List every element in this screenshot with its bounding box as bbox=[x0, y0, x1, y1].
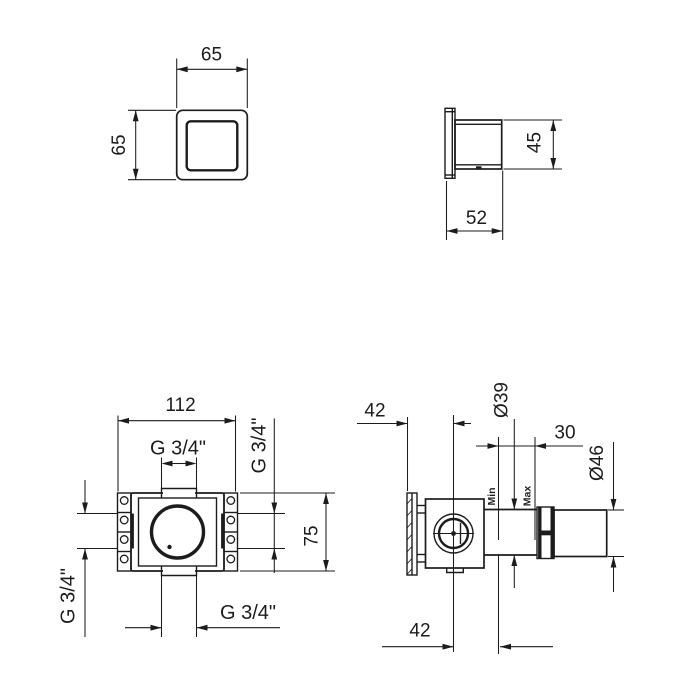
view-valve-front: 112 G 3/4" G 3/4" 75 bbox=[58, 395, 336, 637]
arrow-up-icon bbox=[511, 555, 517, 566]
arrow-left-icon bbox=[447, 228, 458, 234]
dim-label-center-to-min-wall: 42 bbox=[409, 621, 430, 642]
label-max: Max bbox=[522, 486, 534, 507]
valve-right-mounting-strip bbox=[224, 493, 238, 571]
label-top-port-thread: G 3/4" bbox=[150, 438, 206, 460]
arrow-up-icon bbox=[611, 557, 617, 568]
valve-sleeve bbox=[554, 510, 607, 557]
arrow-left-icon bbox=[197, 625, 208, 631]
view-trim-front: 65 65 bbox=[109, 45, 247, 180]
trim-side-body bbox=[455, 120, 502, 169]
arrow-up-icon bbox=[82, 549, 88, 560]
arrow-right-icon bbox=[488, 443, 499, 449]
label-min: Min bbox=[486, 487, 498, 505]
technical-drawing: 65 65 45 bbox=[0, 0, 700, 700]
dim-label-valve-width: 112 bbox=[165, 395, 195, 416]
trim-plate-inner-square bbox=[187, 121, 238, 170]
label-bottom-port-thread: G 3/4" bbox=[220, 602, 276, 624]
dimension-left-port: G 3/4" bbox=[58, 480, 118, 637]
dimension-trim-total-depth: 52 bbox=[447, 171, 503, 241]
dimension-right-port: G 3/4" bbox=[238, 417, 286, 573]
dim-label-body-depth: 45 bbox=[525, 132, 546, 153]
arrow-down-icon bbox=[82, 503, 88, 514]
arrow-left-icon bbox=[454, 421, 465, 427]
valve-stem-center-dot bbox=[451, 531, 456, 536]
view-trim-side: 45 52 bbox=[445, 108, 562, 240]
dim-label-trim-width: 65 bbox=[201, 45, 222, 66]
valve-cartridge-circle bbox=[152, 506, 204, 558]
arrow-down-icon bbox=[323, 560, 329, 571]
arrow-left-icon bbox=[162, 461, 173, 467]
arrow-right-icon bbox=[492, 228, 503, 234]
view-valve-side: 42 Ø39 30 Min Max bbox=[357, 382, 624, 654]
arrow-right-icon bbox=[443, 644, 454, 650]
valve-index-dot bbox=[167, 545, 171, 549]
arrow-down-icon bbox=[550, 158, 556, 169]
dimension-trim-height: 65 bbox=[109, 110, 176, 179]
dimension-sleeve-diameter: Ø46 bbox=[587, 442, 624, 592]
arrow-down-icon bbox=[133, 169, 139, 180]
arrow-down-icon bbox=[611, 499, 617, 510]
dimension-top-port: G 3/4" bbox=[150, 438, 206, 489]
arrow-right-icon bbox=[397, 421, 408, 427]
valve-side-wall-plate bbox=[407, 493, 417, 575]
dimension-bottom-port: G 3/4" bbox=[125, 576, 280, 637]
valve-left-mounting-strip bbox=[118, 493, 132, 571]
technical-drawing-page: 65 65 45 bbox=[0, 0, 700, 700]
arrow-down-icon bbox=[271, 503, 277, 514]
dim-label-total-depth: 52 bbox=[466, 208, 487, 229]
dimension-adjustment-range: 30 Min Max bbox=[476, 423, 583, 655]
arrow-right-icon bbox=[151, 625, 162, 631]
arrow-up-icon bbox=[550, 120, 556, 131]
dim-label-trim-height: 65 bbox=[109, 134, 130, 155]
arrow-right-icon bbox=[225, 418, 236, 424]
arrow-up-icon bbox=[323, 493, 329, 504]
trim-side-plate bbox=[445, 108, 455, 178]
dim-label-valve-height: 75 bbox=[302, 525, 323, 546]
dimension-trim-side-depth: 45 bbox=[504, 120, 563, 169]
label-left-port-thread: G 3/4" bbox=[58, 568, 80, 624]
arrow-right-icon bbox=[186, 461, 197, 467]
dimension-center-to-min-wall: 42 bbox=[382, 621, 553, 650]
arrow-left-icon bbox=[177, 66, 188, 72]
arrow-up-icon bbox=[133, 110, 139, 121]
dim-label-wall-to-center: 42 bbox=[364, 401, 385, 422]
arrow-left-icon bbox=[118, 418, 129, 424]
arrow-left-icon bbox=[500, 644, 511, 650]
arrow-up-icon bbox=[271, 549, 277, 560]
dimension-neck-diameter: Ø39 bbox=[492, 382, 518, 588]
dim-label-sleeve-diameter: Ø46 bbox=[587, 445, 608, 481]
valve-collar bbox=[537, 507, 554, 559]
dimension-trim-width: 65 bbox=[177, 45, 248, 109]
dim-label-adjustment-range: 30 bbox=[554, 423, 575, 444]
arrow-left-icon bbox=[535, 443, 546, 449]
dimension-valve-height: 75 bbox=[240, 493, 335, 571]
dim-label-neck-diameter: Ø39 bbox=[492, 382, 513, 418]
label-right-port-thread: G 3/4" bbox=[249, 417, 271, 473]
arrow-right-icon bbox=[236, 66, 247, 72]
arrow-down-icon bbox=[511, 499, 517, 510]
